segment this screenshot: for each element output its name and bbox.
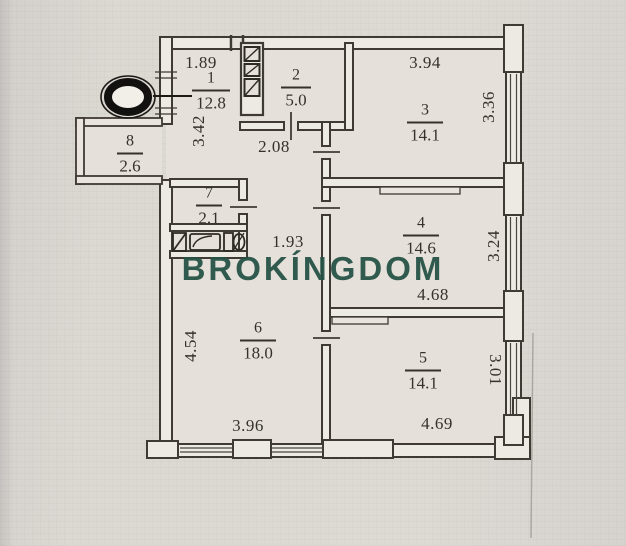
room-label-3: 3 14.1 [407,103,443,144]
dimension-label: 3.94 [409,53,441,73]
fraction-line [281,87,311,89]
dimension-label: 3.42 [189,115,209,147]
room-number: 3 [421,103,429,119]
fraction-line [240,340,276,342]
dimension-label: 4.69 [421,414,453,434]
room-label-1: 1 12.8 [192,71,230,112]
dimension-label: 3.01 [485,354,505,386]
room-area: 18.0 [243,345,273,362]
dimension-label: 4.68 [417,285,449,305]
room-label-8: 8 2.6 [117,134,143,175]
room-number: 8 [126,134,134,150]
dimension-label: 2.08 [258,137,290,157]
room-label-6: 6 18.0 [240,321,276,362]
watermark: BROKÍNGDOM [182,250,445,288]
room-area: 2.6 [119,158,140,175]
scan-fold-line [531,333,533,538]
dimension-label: 3.96 [232,416,264,436]
room-number: 4 [417,216,425,232]
dimension-label: 3.36 [479,91,499,123]
fraction-line [407,122,443,124]
floor-plan: 1 12.8 2 5.0 3 14.1 4 14.6 5 14.1 6 18.0… [0,0,626,546]
dimension-label: 1.89 [185,53,217,73]
fraction-line [196,205,222,207]
fraction-line [405,370,441,372]
ventilation-shaft-icon [241,43,263,115]
room-number: 2 [292,68,300,84]
dimension-label: 4.54 [181,330,201,362]
room-label-5: 5 14.1 [405,351,441,392]
room-area: 14.1 [410,127,440,144]
room-number: 7 [205,186,213,202]
room-label-2: 2 5.0 [281,68,311,109]
room-area: 5.0 [285,92,306,109]
dimension-label: 1.93 [272,232,304,252]
room-area: 2.1 [198,210,219,227]
fraction-line [403,235,439,237]
room-area: 12.8 [196,95,226,112]
room-number: 6 [254,321,262,337]
dimension-label: 3.24 [484,230,504,262]
fraction-line [117,153,143,155]
room-label-7: 7 2.1 [196,186,222,227]
room-area: 14.1 [408,375,438,392]
room-number: 5 [419,351,427,367]
fraction-line [192,90,230,92]
